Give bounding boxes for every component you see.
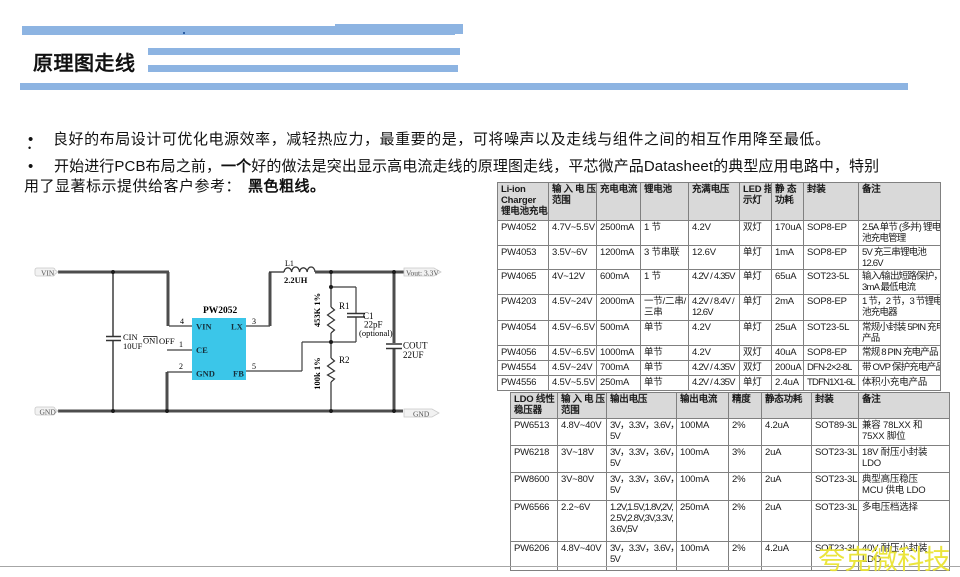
svg-text:GND: GND [413, 410, 430, 419]
svg-text:GND: GND [196, 369, 215, 379]
svg-text:R2: R2 [339, 355, 350, 365]
svg-text:453K 1%: 453K 1% [312, 293, 322, 327]
svg-text:Vout: 3.3V: Vout: 3.3V [406, 269, 439, 278]
svg-text:22UF: 22UF [403, 350, 424, 360]
svg-text:OFF: OFF [159, 336, 175, 346]
svg-text:VIN: VIN [41, 269, 55, 278]
svg-text:10UF: 10UF [123, 341, 143, 351]
svg-text:5: 5 [252, 362, 256, 371]
svg-text:PW2052: PW2052 [203, 306, 238, 316]
svg-text:1: 1 [179, 340, 183, 349]
svg-text:4: 4 [180, 317, 184, 326]
svg-text:CE: CE [196, 345, 208, 355]
svg-text:3: 3 [252, 317, 256, 326]
svg-text:2.2UH: 2.2UH [284, 275, 308, 285]
svg-text:(optional): (optional) [359, 328, 393, 338]
svg-text:100k 1%: 100k 1% [312, 357, 322, 389]
svg-text:ON: ON [143, 336, 155, 346]
svg-text:L1: L1 [285, 259, 294, 268]
svg-text:COUT: COUT [403, 341, 428, 351]
svg-text:VIN: VIN [196, 322, 212, 332]
svg-text:FB: FB [233, 369, 244, 379]
svg-text:R1: R1 [339, 301, 350, 311]
svg-text:LX: LX [231, 322, 244, 332]
svg-text:2: 2 [179, 362, 183, 371]
svg-text:GND: GND [40, 408, 57, 417]
